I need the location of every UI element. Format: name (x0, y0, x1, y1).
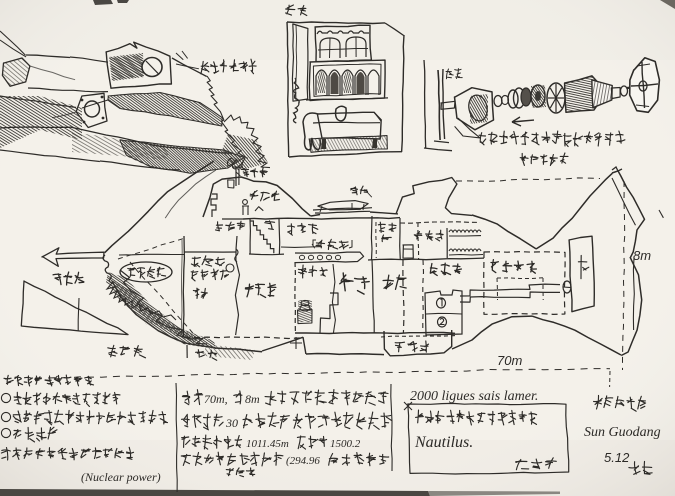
svg-text:1500.2: 1500.2 (330, 438, 361, 450)
svg-text:Nautilus.: Nautilus. (414, 434, 473, 451)
svg-text:8m: 8m (245, 392, 260, 406)
svg-text:(Nuclear power): (Nuclear power) (81, 470, 161, 484)
svg-text:5.12: 5.12 (604, 450, 630, 465)
svg-text:70m,: 70m, (204, 392, 228, 406)
svg-text:8m: 8m (633, 248, 651, 263)
svg-text:30: 30 (225, 416, 238, 430)
svg-text:2000 ligues sais lamer.: 2000 ligues sais lamer. (410, 389, 538, 404)
svg-text:70m: 70m (497, 353, 522, 368)
svg-text:Sun Guodang: Sun Guodang (584, 425, 661, 440)
svg-text:1011.45m: 1011.45m (246, 438, 289, 450)
svg-text:(294.96: (294.96 (286, 455, 320, 467)
